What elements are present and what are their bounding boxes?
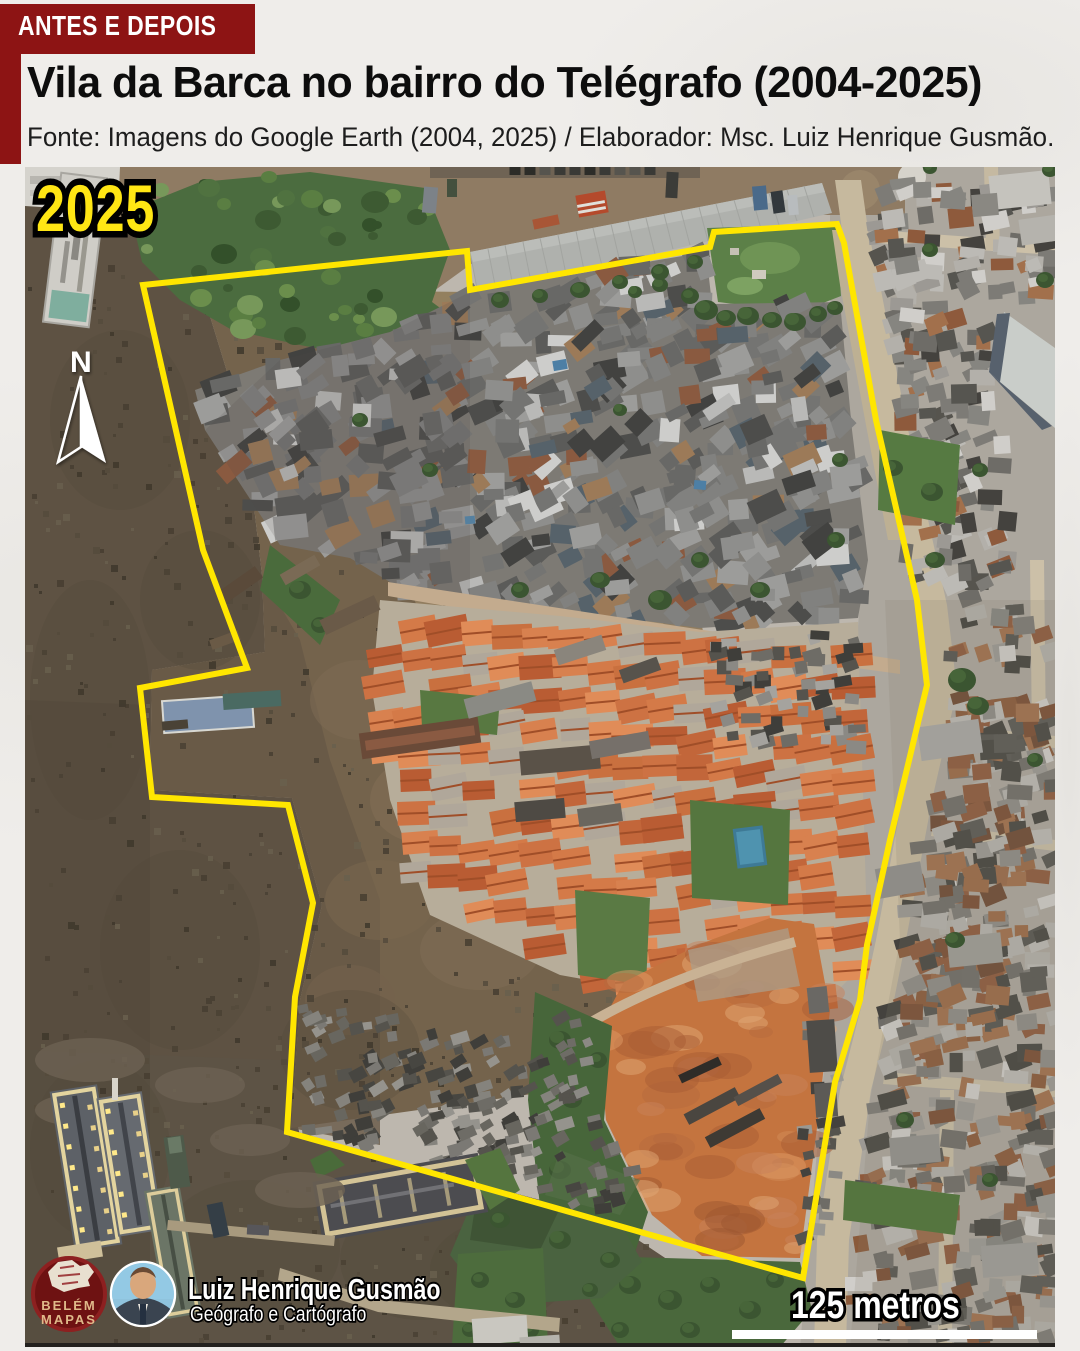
- svg-text:2025: 2025: [36, 171, 155, 245]
- svg-text:BELÉM: BELÉM: [41, 1298, 97, 1313]
- svg-text:Geógrafo e Cartógrafo: Geógrafo e Cartógrafo: [190, 1303, 366, 1327]
- svg-text:N: N: [70, 346, 92, 379]
- svg-text:MAPAS: MAPAS: [41, 1312, 97, 1327]
- svg-text:Luiz Henrique Gusmão: Luiz Henrique Gusmão: [188, 1272, 441, 1305]
- svg-text:125 metros: 125 metros: [791, 1283, 960, 1327]
